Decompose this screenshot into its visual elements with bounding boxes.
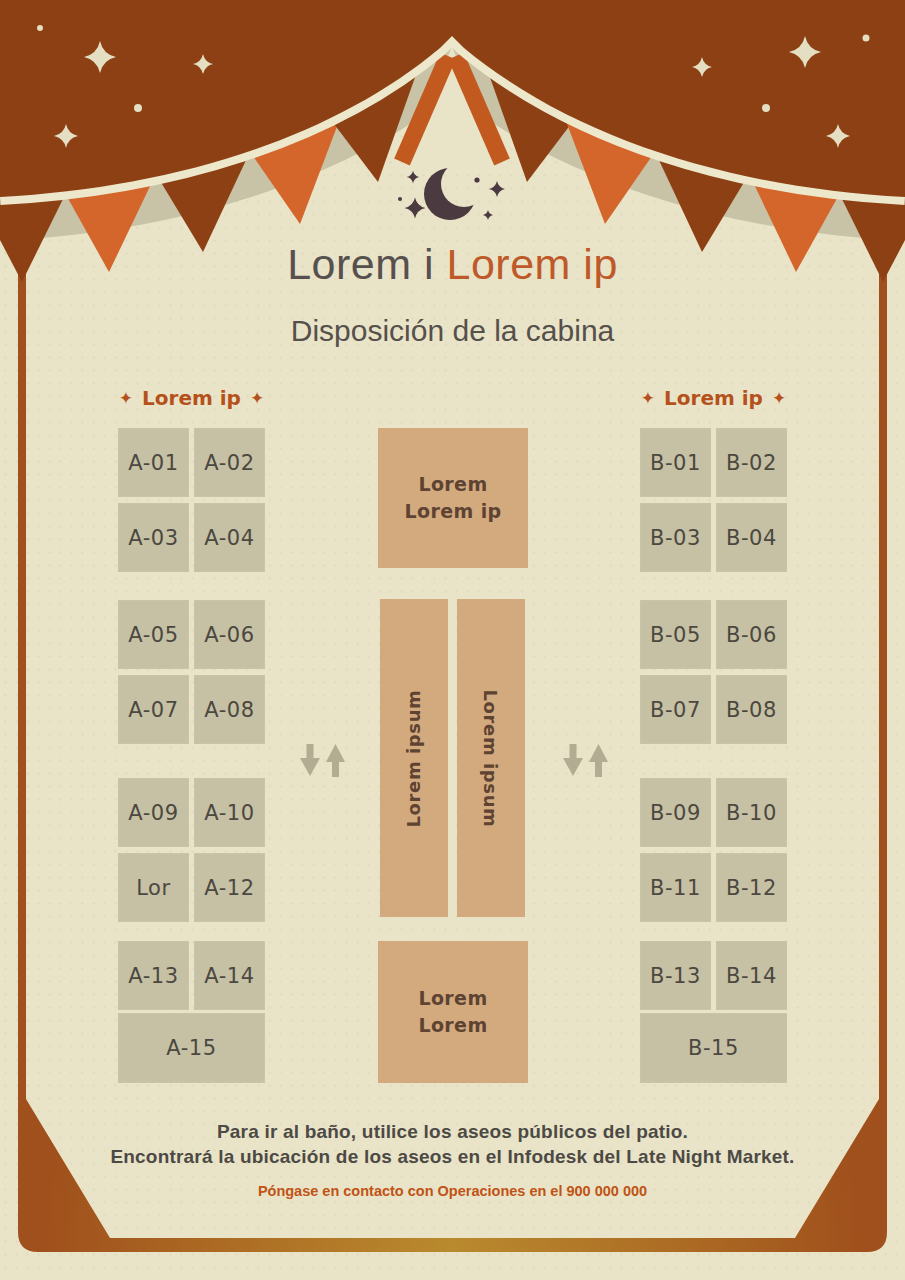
booth-B-09: B-09 [640,778,711,847]
booth-B-08: B-08 [716,675,787,744]
booth-B-10: B-10 [716,778,787,847]
booth-B-06: B-06 [716,600,787,669]
booth-A-01: A-01 [118,428,189,497]
booth-B-04: B-04 [716,503,787,572]
star-dot [134,104,142,112]
sparkle-star-icon [405,198,426,219]
crescent-moon-icon [398,168,505,220]
section-header-right: ✦ Lorem ip ✦ [640,384,787,412]
sparkle-star-icon [407,171,419,183]
booth-A-13: A-13 [118,941,189,1010]
center-bottom-block: Lorem Lorem [378,941,528,1083]
booth-A-08: A-08 [194,675,265,744]
center-top-block-line1: Lorem [418,471,487,498]
aisle-column-right-label: Lorem ipsum [481,689,502,827]
two-way-arrows-icon [563,744,609,778]
booth-B-03: B-03 [640,503,711,572]
booth-B-01: B-01 [640,428,711,497]
sparkle-icon: ✦ [772,390,786,407]
star-dot [762,104,770,112]
page-subtitle: Disposición de la cabina [0,313,905,349]
booth-A-05: A-05 [118,600,189,669]
booth-A-02: A-02 [194,428,265,497]
booth-B-05: B-05 [640,600,711,669]
booth-A-09: A-09 [118,778,189,847]
center-top-block-line2: Lorem ip [404,498,501,525]
page-title-accent: Lorem ip [447,240,618,288]
booth-A-12: A-12 [194,853,265,922]
booth-B-07: B-07 [640,675,711,744]
page-title: Lorem i Lorem ip [0,240,905,288]
aisle-column-left: Lorem ipsum [380,599,448,917]
booth-A-14: A-14 [194,941,265,1010]
booth-A-10: A-10 [194,778,265,847]
star-dot [398,197,402,201]
sparkle-icon: ✦ [250,390,264,407]
booth-grid-a: A-01A-02A-03A-04A-05A-06A-07A-08A-09A-10… [118,428,265,1083]
booth-B-02: B-02 [716,428,787,497]
star-dot [37,25,43,31]
center-bottom-block-line2: Lorem [418,1012,487,1039]
section-header-right-label: Lorem ip [664,386,763,410]
booth-B-12: B-12 [716,853,787,922]
booth-layout-poster: Lorem i Lorem ip Disposición de la cabin… [0,0,905,1280]
booth-A-15: A-15 [118,1013,265,1083]
booth-Lor: Lor [118,853,189,922]
two-way-arrows-icon [300,744,346,778]
aisle-column-right: Lorem ipsum [457,599,525,917]
sparkle-icon: ✦ [119,390,133,407]
footer-contact-line: Póngase en contacto con Operaciones en e… [0,1183,905,1200]
footer-note-line2: Encontrará la ubicación de los aseos en … [0,1146,905,1168]
booth-grid-b: B-01B-02B-03B-04B-05B-06B-07B-08B-09B-10… [640,428,787,1083]
center-bottom-block-line1: Lorem [418,985,487,1012]
page-title-primary: Lorem i [287,240,434,288]
sparkle-star-icon [489,181,505,197]
aisle-column-left-label: Lorem ipsum [404,689,425,827]
section-header-left: ✦ Lorem ip ✦ [118,384,265,412]
star-dot [863,35,870,42]
tent-canopy-graphic [0,0,905,340]
booth-B-11: B-11 [640,853,711,922]
sparkle-icon: ✦ [641,390,655,407]
booth-B-14: B-14 [716,941,787,1010]
booth-B-15: B-15 [640,1013,787,1083]
center-top-block: Lorem Lorem ip [378,428,528,568]
booth-A-06: A-06 [194,600,265,669]
sparkle-star-icon [483,210,493,220]
booth-A-03: A-03 [118,503,189,572]
footer-note-line1: Para ir al baño, utilice los aseos públi… [0,1121,905,1143]
section-header-left-label: Lorem ip [142,386,241,410]
booth-A-04: A-04 [194,503,265,572]
booth-A-07: A-07 [118,675,189,744]
booth-B-13: B-13 [640,941,711,1010]
star-dot [474,177,479,182]
